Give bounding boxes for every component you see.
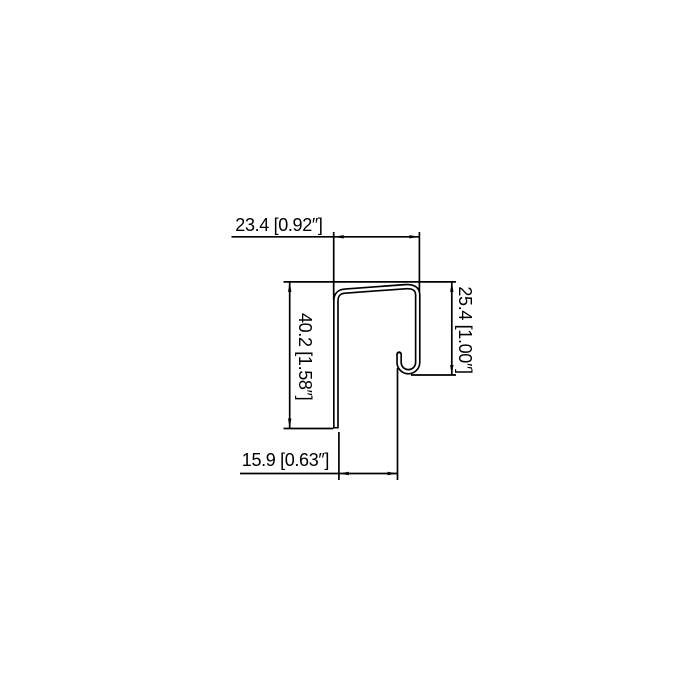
- svg-text:15.9 [0.63″]: 15.9 [0.63″]: [242, 450, 329, 470]
- svg-text:23.4 [0.92″]: 23.4 [0.92″]: [235, 215, 322, 235]
- svg-text:25.4 [1.00″]: 25.4 [1.00″]: [455, 286, 475, 373]
- svg-text:40.2 [1.58″]: 40.2 [1.58″]: [295, 313, 315, 400]
